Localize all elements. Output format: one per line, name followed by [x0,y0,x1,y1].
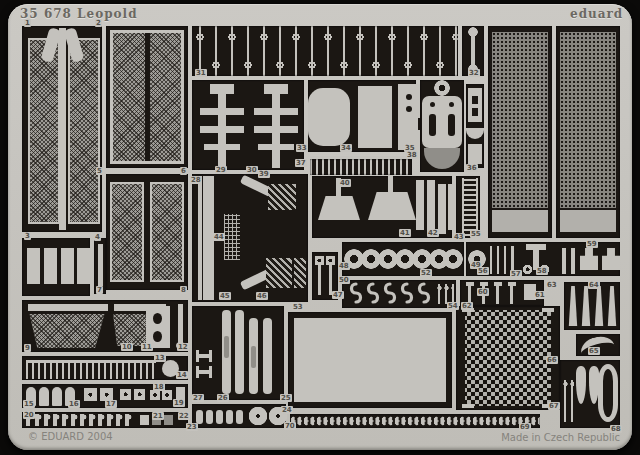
corner-bracket [462,404,474,408]
cell-part-3 [22,238,90,296]
photo-etch-sheet-photo: 35 678 Leopold eduard © EDUARD 2004 Made… [0,0,640,455]
capsule-part [236,410,243,424]
slot [429,114,436,136]
pin-head [120,389,131,400]
blade-part [568,286,578,326]
cell-row-20-22 [22,412,188,428]
cross-arm [200,126,244,133]
t-pin [508,282,516,304]
comb-strip [26,360,156,379]
tool-detail [224,336,229,358]
cell-row-15-19 [22,384,188,408]
cell-small-parts [466,84,484,168]
rod-part [178,304,183,344]
rivet-plate [27,248,40,284]
grille-panel [110,30,184,164]
ring-part [434,80,450,96]
cross-arm [258,144,294,150]
pin-head [150,390,160,400]
shield-plate [422,96,462,148]
slot [448,114,455,136]
strip-41 [427,180,435,230]
cell-plate-53 [288,312,452,408]
ladder-mesh-44 [224,214,240,260]
cell-plates-33-35 [308,80,416,152]
capsule-part [206,410,213,424]
square-part [152,415,161,425]
cell-bead-chain [290,414,540,428]
cell-curve-65 [576,334,620,356]
cell-cross-brackets [192,80,304,170]
rounded-plate [308,88,350,146]
cell-parts-5-8 [106,174,188,290]
cell-lamps-40-42 [312,176,452,238]
ring-end [540,265,549,274]
cell-rivet-comb-37-38 [310,156,412,175]
cross-arm [254,108,298,115]
hole [406,106,412,112]
blade-part [581,286,591,326]
flat-plate [358,86,392,148]
pin-head [162,390,172,400]
perforated-panel [492,32,548,208]
lamp-shade [368,192,416,220]
hole [406,94,412,100]
mesh-panel [150,182,184,282]
strip-42 [438,184,446,234]
thin-strip [98,244,103,286]
cell-row-49-59 [466,242,620,276]
corner-bracket [542,308,554,312]
cell-pins-47 [312,252,338,300]
cross-arm [204,144,240,150]
blank-plate-53 [294,318,446,402]
square-61 [524,284,536,300]
hatched-plate-39 [268,184,296,210]
hatched-plate-46 [266,258,292,288]
h-clamp-27 [196,350,212,362]
tool-handle [235,310,244,394]
slotted-plate [468,88,482,122]
capsule-part [216,410,223,424]
clamp-plate [65,387,75,406]
ring-end [523,265,532,274]
cell-row-23-24 [192,404,286,428]
etch-line [202,176,203,300]
ring-part [443,249,463,269]
cross-bracket [200,84,244,168]
pin-row-67 [562,380,574,422]
cell-comb-13-14 [22,356,188,380]
cell-part-2 [106,26,188,168]
copyright-text: © EDUARD 2004 [28,431,113,442]
strip-41 [416,180,424,230]
cell-fenders-9-12 [22,300,188,352]
tool-detail [251,346,256,368]
mesh-fender [28,314,106,348]
saddle-59 [580,248,598,270]
perforated-panel [560,32,616,208]
hole [449,102,454,107]
ring-end [468,27,478,37]
blade-part [594,286,604,326]
pin-stem [318,263,321,295]
square-part [140,415,149,425]
hatched-plate-46 [294,258,306,288]
teardrop-part [576,366,586,404]
ring-end [468,64,478,74]
panel-divider [145,33,150,161]
pin-head [134,389,145,400]
cell-part-4 [94,238,106,294]
corner-bracket [542,404,554,408]
brand-logo-text: eduard [570,7,623,21]
hole [430,102,435,107]
rivet-plate [44,248,57,284]
strip-42 [448,184,456,230]
cell-blades-63-64 [564,282,620,330]
h-clamp-27 [196,366,212,378]
made-in-text: Made in Czech Republic [408,432,620,443]
long-strip-28 [198,176,214,300]
disc-part [162,360,179,377]
clamp-plate [26,387,36,406]
tool-handle [263,318,272,394]
capsule-part [196,410,203,424]
pin-row-52 [436,284,454,304]
cell-clamp-32 [462,26,484,76]
t-bracket-57 [522,244,550,274]
panel-footer [560,210,616,232]
pin-stem [329,263,332,295]
cross-arm [254,126,298,133]
cell-parts-66-68 [560,360,620,428]
cell-shield-36 [420,80,464,172]
cross-cap [264,84,288,94]
rivet-plate [77,248,90,284]
ring-49 [468,250,486,268]
mesh-strip [28,38,60,224]
half-dome [466,128,484,139]
shield-dome [424,148,460,169]
disc-24 [248,406,268,426]
cell-row-60-61 [460,280,544,306]
cell-grille-right [556,26,620,238]
disc-24 [268,406,288,426]
mushroom-head [84,388,97,401]
honeycomb-panel [465,310,551,406]
cell-ladder-43-55 [456,176,480,238]
clamp-plate [52,387,62,406]
center-spine [59,28,66,230]
cross-bracket [254,84,298,168]
corner-bracket [462,308,474,312]
lamp-stem [388,176,393,192]
t-stem [533,250,539,270]
mesh-panel [110,182,144,282]
cell-grille-left [488,26,552,238]
cell-honeycomb-62 [456,306,560,410]
bar-58 [571,248,575,274]
panel-footer [492,210,548,232]
hook-row [26,414,134,426]
mesh-strip [68,38,100,224]
oval-ring-68 [598,364,618,422]
square-part [164,415,173,425]
small-plate [176,387,185,405]
cell-hooks-50-52 [342,280,456,308]
fender-rail [28,304,108,311]
cell-part-1 [22,26,102,232]
ladder-strip [462,178,478,236]
sheet-title: 35 678 Leopold [20,7,138,21]
cell-rings-48 [342,242,464,276]
hole [153,313,162,324]
t-pin [480,282,488,304]
bar-set-56 [490,246,516,274]
cross-cap [210,84,234,94]
clamp-plate [39,387,49,406]
cell-clamp-row-31 [192,26,458,76]
cell-parts-28-46 [192,174,308,302]
hole [153,331,162,342]
lamp-shade [318,196,360,220]
small-plate [468,144,482,164]
rivet-plate [61,248,74,284]
saddle-59 [602,248,620,270]
lamp-stem [336,178,341,196]
slot [472,96,478,104]
slot [472,108,478,116]
t-pin [466,282,474,304]
t-pin [494,282,502,304]
mushroom-head [100,388,113,401]
bar-58 [562,248,566,274]
plate-with-holes [146,306,170,348]
blade-part [607,286,617,326]
rod-knob [176,342,185,349]
s-hooks-shape [346,281,434,307]
cell-tools-25-27 [192,306,284,400]
cross-arm [200,108,244,115]
capsule-part [226,410,233,424]
